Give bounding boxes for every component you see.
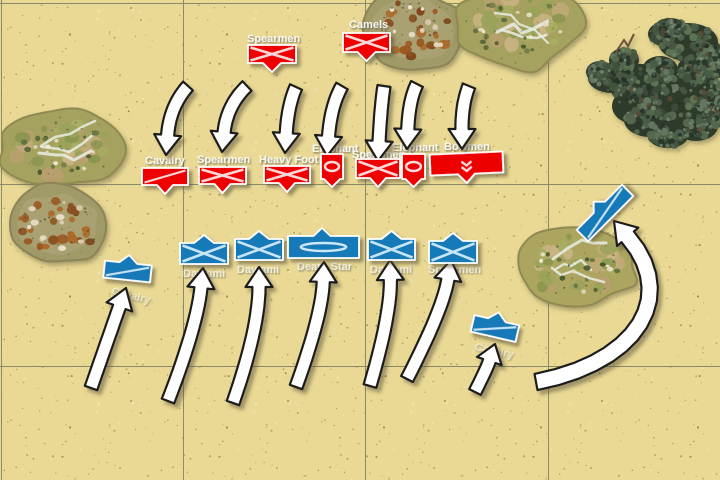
svg-text:Heavy Foot: Heavy Foot	[259, 154, 319, 166]
svg-text:Spearmen: Spearmen	[247, 33, 300, 45]
svg-text:Camels: Camels	[349, 19, 388, 31]
svg-text:Cavalry: Cavalry	[145, 155, 186, 167]
svg-text:Spearmen: Spearmen	[197, 154, 250, 166]
svg-text:Elephant: Elephant	[392, 142, 439, 154]
